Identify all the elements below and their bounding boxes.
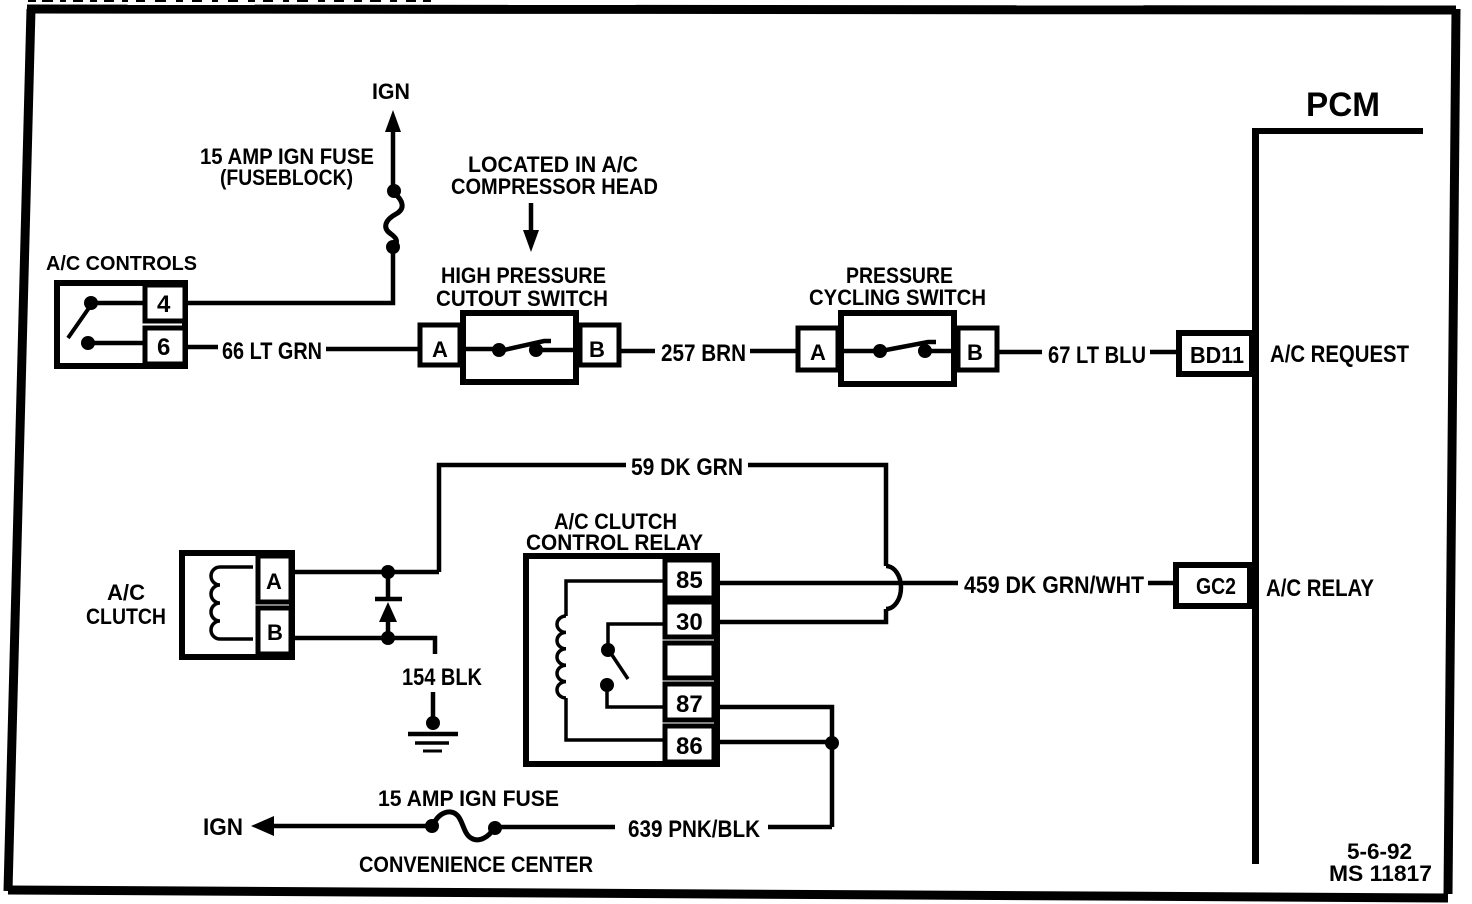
svg-text:66 LT GRN: 66 LT GRN xyxy=(222,338,322,365)
svg-text:A/C: A/C xyxy=(107,580,145,605)
svg-text:IGN: IGN xyxy=(372,79,410,104)
svg-text:30: 30 xyxy=(676,609,703,636)
svg-text:59 DK GRN: 59 DK GRN xyxy=(631,454,743,481)
svg-text:6: 6 xyxy=(157,334,170,361)
svg-text:MS 11817: MS 11817 xyxy=(1329,861,1432,886)
svg-text:257 BRN: 257 BRN xyxy=(661,340,746,367)
svg-text:HIGH PRESSURE: HIGH PRESSURE xyxy=(441,263,606,288)
svg-text:87: 87 xyxy=(676,691,703,718)
svg-text:B: B xyxy=(267,620,283,645)
svg-text:A/C RELAY: A/C RELAY xyxy=(1266,575,1374,602)
svg-text:B: B xyxy=(967,340,983,365)
svg-text:CONTROL RELAY: CONTROL RELAY xyxy=(526,530,703,555)
svg-text:IGN: IGN xyxy=(203,814,243,841)
svg-text:PCM: PCM xyxy=(1306,86,1380,124)
svg-text:154 BLK: 154 BLK xyxy=(402,664,483,691)
svg-text:CUTOUT SWITCH: CUTOUT SWITCH xyxy=(436,286,608,311)
svg-text:A/C REQUEST: A/C REQUEST xyxy=(1270,341,1409,368)
svg-text:CONVENIENCE CENTER: CONVENIENCE CENTER xyxy=(359,852,593,877)
svg-text:B: B xyxy=(589,337,605,362)
svg-text:639 PNK/BLK: 639 PNK/BLK xyxy=(628,816,761,843)
svg-text:CYCLING SWITCH: CYCLING SWITCH xyxy=(809,285,986,310)
svg-text:CLUTCH: CLUTCH xyxy=(86,604,166,629)
svg-text:459 DK GRN/WHT: 459 DK GRN/WHT xyxy=(964,572,1144,599)
svg-text:4: 4 xyxy=(157,291,171,318)
svg-text:85: 85 xyxy=(676,567,703,594)
svg-text:A: A xyxy=(810,340,826,365)
svg-text:(FUSEBLOCK): (FUSEBLOCK) xyxy=(220,165,353,190)
svg-text:86: 86 xyxy=(676,733,703,760)
svg-text:67 LT BLU: 67 LT BLU xyxy=(1048,342,1146,369)
svg-text:A/C CONTROLS: A/C CONTROLS xyxy=(46,253,197,275)
svg-text:COMPRESSOR HEAD: COMPRESSOR HEAD xyxy=(451,174,658,199)
svg-text:A: A xyxy=(266,569,282,594)
svg-text:15 AMP IGN FUSE: 15 AMP IGN FUSE xyxy=(378,786,559,811)
svg-text:BD11: BD11 xyxy=(1190,342,1244,368)
svg-text:GC2: GC2 xyxy=(1196,573,1236,599)
svg-text:A: A xyxy=(432,337,448,362)
